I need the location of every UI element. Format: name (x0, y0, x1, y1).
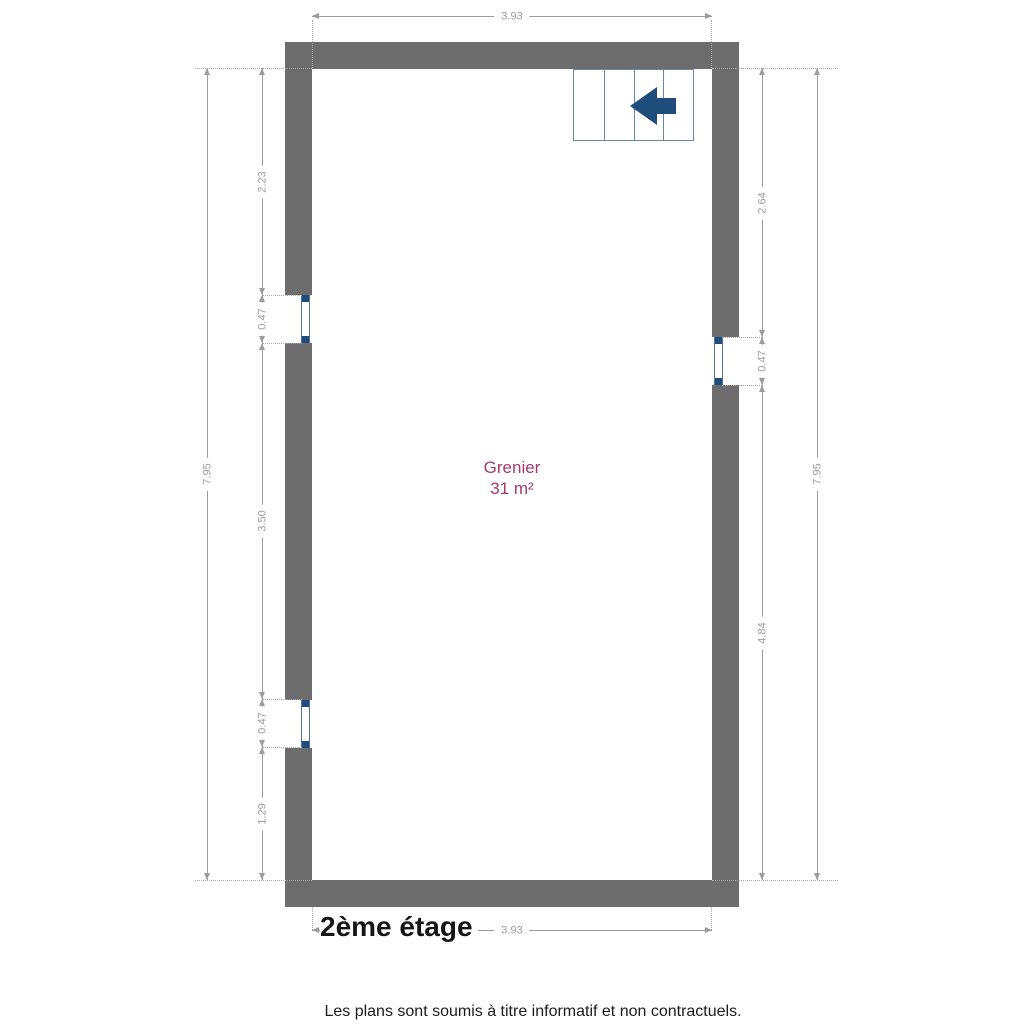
extension-line (722, 385, 762, 386)
stair-tread-line (604, 70, 605, 140)
dimension-label: 3.93 (494, 10, 529, 23)
window-right (714, 337, 723, 385)
extension-line (262, 699, 302, 700)
room-name: Grenier (312, 457, 712, 478)
dimension-label: 2.64 (756, 186, 769, 219)
room-area: 31 m² (312, 478, 712, 499)
extension-line (195, 880, 312, 881)
dimension-label: 4.84 (756, 616, 769, 649)
window-cap (302, 295, 309, 302)
dimension-right-segment-3: 4.84 (762, 385, 763, 880)
dimension-left-segment-5: 1.29 (262, 747, 263, 880)
dimension-right-total-height: 7.95 (817, 68, 818, 880)
window-cap (302, 700, 309, 707)
dimension-label: 7.95 (811, 457, 824, 490)
extension-line (712, 68, 838, 69)
arrow-head (630, 87, 657, 125)
dimension-right-segment-2: 0.47 (762, 337, 763, 385)
extension-line (711, 20, 712, 68)
window-cap (302, 336, 309, 343)
arrow-shaft (656, 98, 676, 114)
extension-line (712, 880, 838, 881)
extension-line (262, 747, 302, 748)
extension-line (262, 343, 302, 344)
dimension-label: 0.47 (256, 706, 269, 739)
window-cap (302, 741, 309, 748)
dimension-left-segment-3: 3.50 (262, 343, 263, 699)
extension-line (262, 295, 302, 296)
extension-line (711, 907, 712, 930)
staircase (573, 69, 694, 141)
window-left-lower (301, 700, 310, 748)
window-cap (715, 378, 722, 385)
dimension-label: 0.47 (756, 344, 769, 377)
disclaimer-text: Les plans sont soumis à titre informatif… (324, 1003, 741, 1021)
dimension-label: 3.93 (494, 924, 529, 937)
floorplan-canvas: 3.93 3.93 7.95 7.95 2.23 0.47 3.50 0.47 … (0, 0, 1024, 1024)
dimension-left-segment-1: 2.23 (262, 68, 263, 295)
dimension-top-width: 3.93 (312, 16, 712, 17)
dimension-label: 7.95 (201, 457, 214, 490)
extension-line (312, 20, 313, 68)
extension-line (312, 907, 313, 930)
dimension-left-segment-2: 0.47 (262, 295, 263, 343)
floor-title: 2ème étage (320, 911, 478, 943)
dimension-label: 2.23 (256, 165, 269, 198)
dimension-left-total-height: 7.95 (207, 68, 208, 880)
room-label: Grenier 31 m² (312, 457, 712, 499)
dimension-label: 1.29 (256, 797, 269, 830)
dimension-left-segment-4: 0.47 (262, 699, 263, 747)
dimension-label: 0.47 (256, 302, 269, 335)
window-left-upper (301, 295, 310, 343)
dimension-right-segment-1: 2.64 (762, 68, 763, 337)
window-cap (715, 337, 722, 344)
extension-line (722, 337, 762, 338)
extension-line (195, 68, 312, 69)
dimension-label: 3.50 (256, 504, 269, 537)
stairs-direction-arrow-icon (630, 87, 680, 125)
